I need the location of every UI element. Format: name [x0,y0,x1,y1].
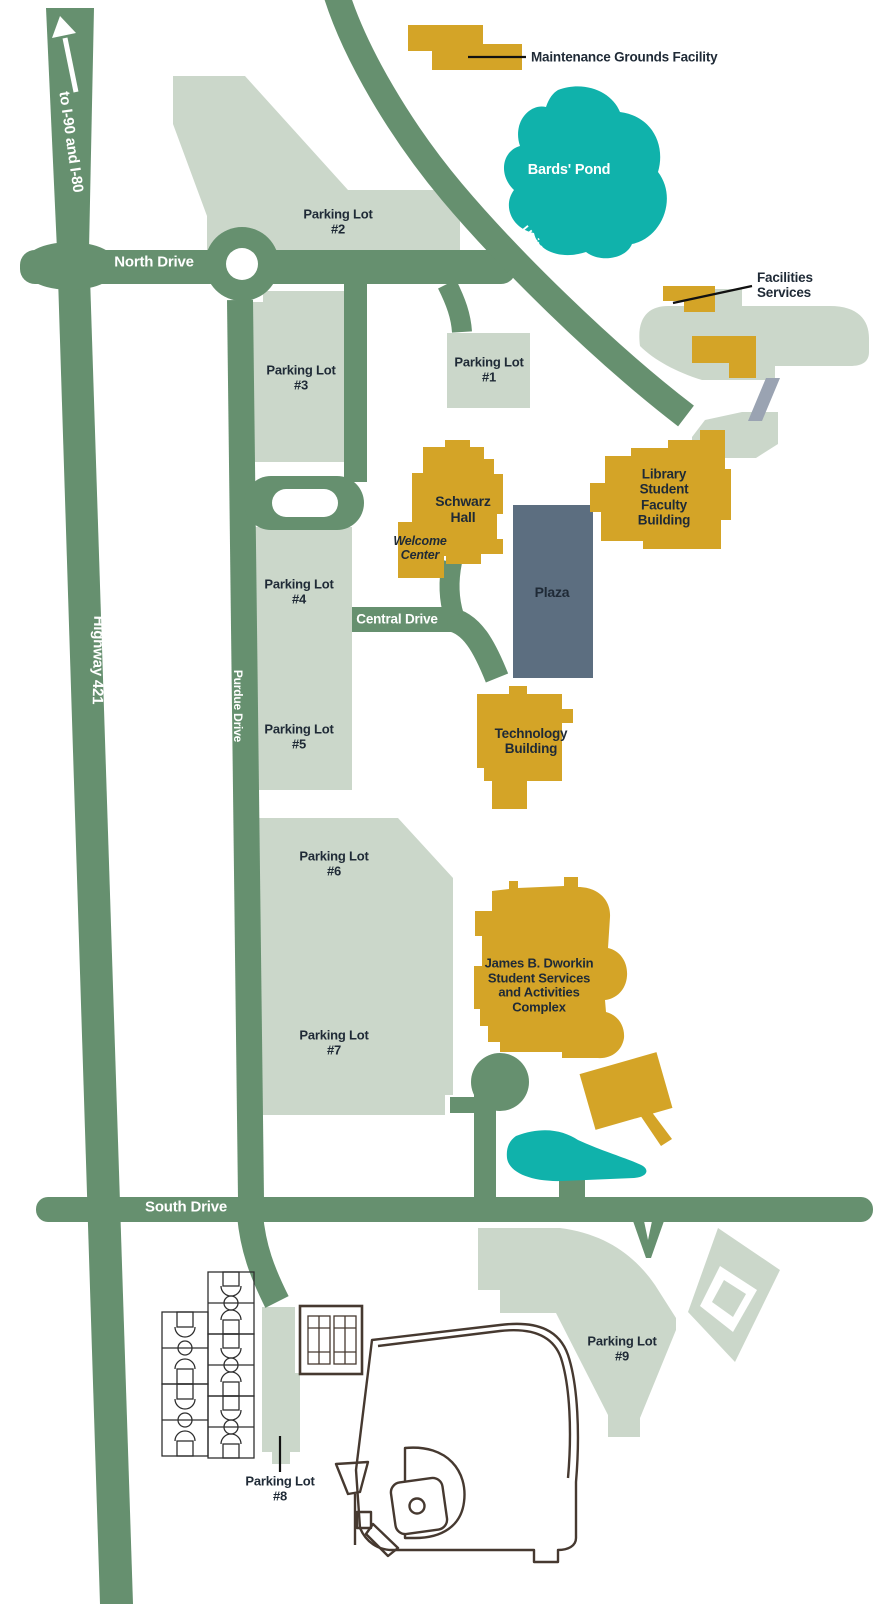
tennis-court [308,1316,330,1364]
basketball-court [208,1396,254,1458]
facilities-services-label: FacilitiesServices [757,270,813,301]
basketball-court [208,1272,254,1334]
library-building-label: LibraryStudent FacultyBuilding [638,467,690,528]
maintenance-label: Maintenance Grounds Facility [531,49,717,64]
baseball-field [336,1324,578,1562]
parking-lot-9-label: Parking Lot#9 [587,1334,656,1363]
baseball-dugout-ramp [366,1524,398,1556]
parking-lot-5-label: Parking Lot#5 [264,722,333,751]
parking-lot-6-label: Parking Lot#6 [299,849,368,878]
road-lot3-east [344,282,367,482]
dworkin-annex-shape [580,1052,673,1130]
technology-building-label: TechnologyBuilding [495,726,568,757]
baseball-backstop-flag [336,1462,368,1494]
basketball-court [208,1334,254,1396]
road-lot9-entrance [633,1221,664,1258]
welcome-center-label: WelcomeCenter [393,534,446,562]
parking-lot-2-label: Parking Lot#2 [303,207,372,236]
campus-map: to I-90 and I-80 Highway 421 North Drive… [0,0,873,1604]
road-lot1-access [447,284,462,332]
parking-lot-8-label: Parking Lot#8 [245,1474,314,1503]
road-purdue-drive [240,300,251,1199]
loop-island [272,489,338,517]
schwarz-hall-label: SchwarzHall [435,494,490,526]
bards-pond-label: Bards' Pond [528,162,611,178]
highway-421-label: Highway 421 [88,616,106,705]
parking-lot-3-label: Parking Lot#3 [266,363,335,392]
north-drive-label: North Drive [114,255,193,272]
tennis-courts [300,1306,362,1374]
campus-map-graphics [0,0,873,1604]
road-culdesac-west-stub [450,1097,476,1113]
dworkin-complex-label: James B. DworkinStudent Services and Act… [485,957,594,1016]
purdue-drive-label: Purdue Drive [230,670,244,742]
baseball-pitchers-mound [410,1499,425,1514]
parking-lot-4-label: Parking Lot#4 [264,577,333,606]
road-central-curve [448,619,497,678]
road-highway-421 [57,246,133,1604]
plaza-label: Plaza [535,585,570,601]
south-drive-label: South Drive [145,1200,227,1217]
road-culdesac-stem [474,1088,496,1199]
parking-lot-1-label: Parking Lot#1 [454,355,523,384]
road-pond-stub [559,1178,585,1200]
central-drive-label: Central Drive [356,611,437,626]
south-pond-shape [507,1130,647,1181]
roundabout-island [226,248,258,280]
baseball-outfield-outline [356,1324,578,1562]
basketball-courts [162,1272,254,1458]
tennis-court [334,1316,356,1364]
basketball-court [162,1312,208,1384]
parking-lot-7-label: Parking Lot#7 [299,1028,368,1057]
road-welcome-stub [450,562,454,616]
basketball-court [162,1384,208,1456]
